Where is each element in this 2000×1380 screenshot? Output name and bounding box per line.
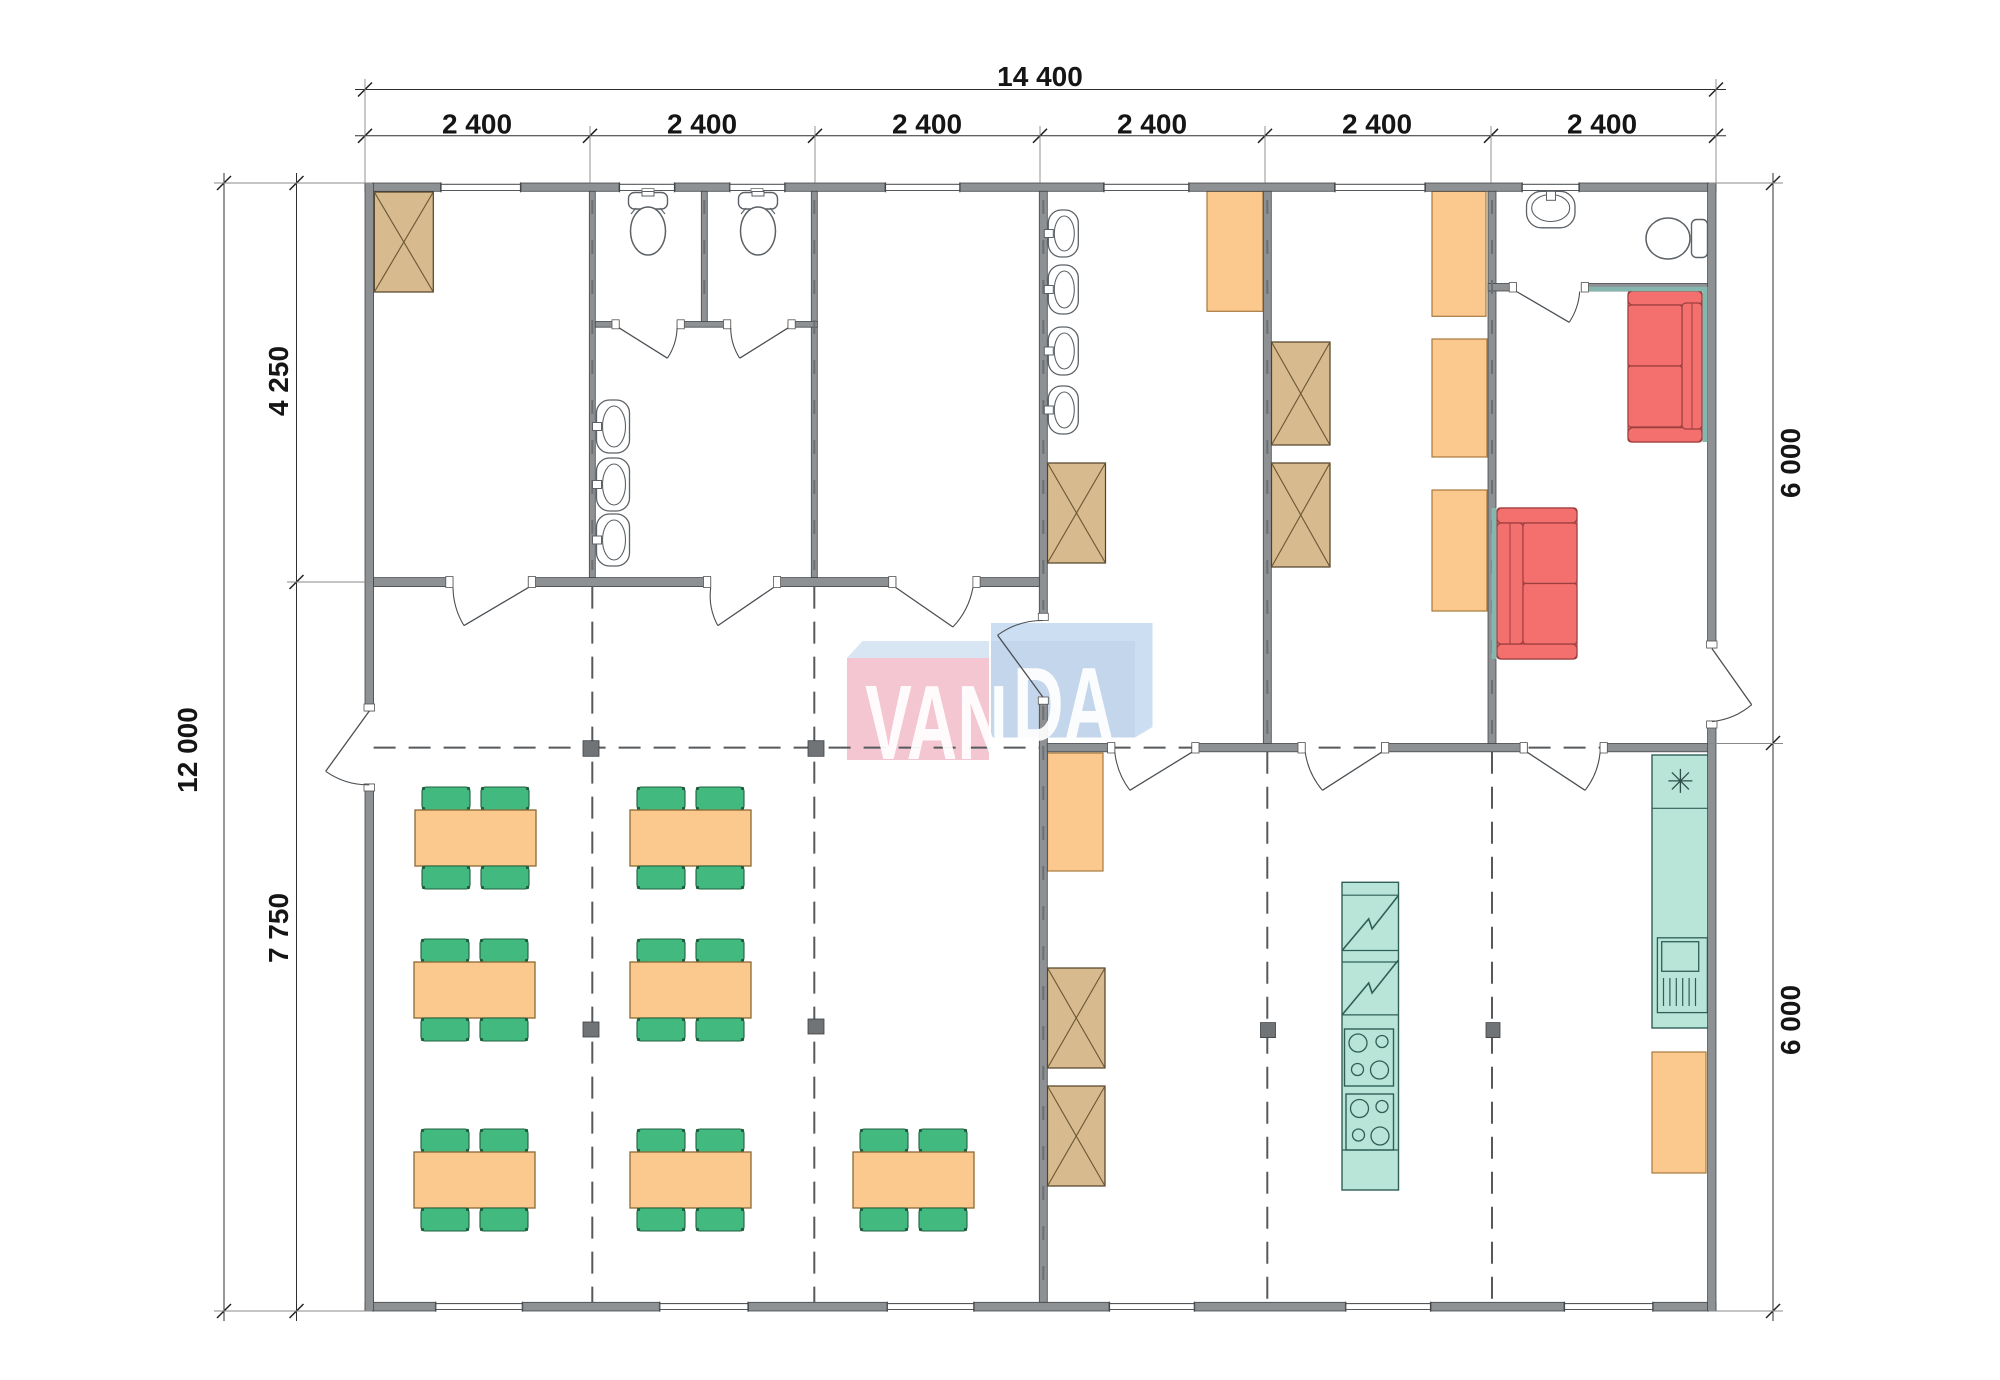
- svg-text:14 400: 14 400: [997, 61, 1083, 92]
- svg-text:2 400: 2 400: [1567, 109, 1637, 140]
- svg-text:2 400: 2 400: [442, 109, 512, 140]
- svg-text:2 400: 2 400: [1342, 109, 1412, 140]
- svg-text:6 000: 6 000: [1775, 428, 1806, 498]
- svg-text:6 000: 6 000: [1775, 985, 1806, 1055]
- svg-text:4 250: 4 250: [263, 346, 294, 416]
- svg-text:12 000: 12 000: [172, 707, 203, 793]
- svg-text:VAN: VAN: [865, 665, 1008, 783]
- svg-text:7 750: 7 750: [263, 893, 294, 963]
- svg-text:2 400: 2 400: [1117, 109, 1187, 140]
- svg-text:DA: DA: [1013, 647, 1114, 765]
- svg-text:2 400: 2 400: [892, 109, 962, 140]
- svg-text:2 400: 2 400: [667, 109, 737, 140]
